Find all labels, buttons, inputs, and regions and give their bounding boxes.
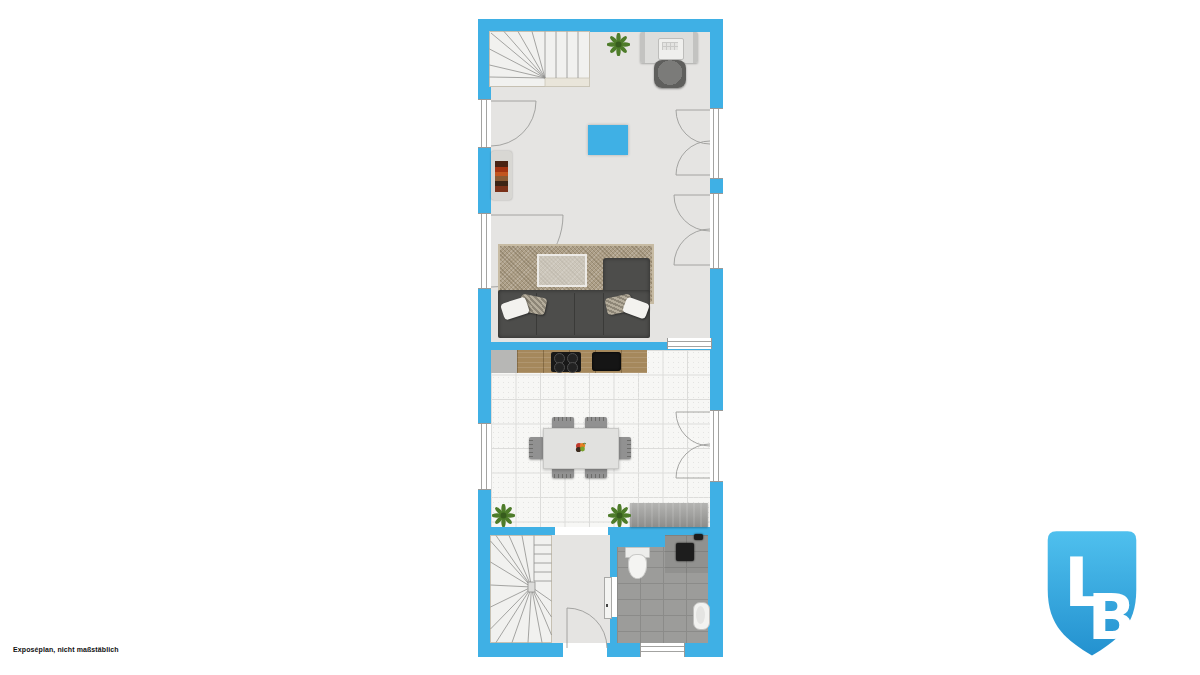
plant-icon [608,504,631,527]
hob-icon [551,352,581,372]
page: Exposéplan, nicht maßstäblich L B [0,0,1200,675]
plant-icon [492,504,515,527]
staircase-top [490,32,590,87]
logo-letter-b: B [1088,581,1136,654]
staircase-bottom [491,536,552,643]
sofa-seam [574,293,575,335]
laptop-icon [658,38,684,60]
fruit-bowl-icon [574,441,587,454]
door-arc-right-2 [674,195,710,265]
washbasin-bowl [696,606,705,624]
shower-icon [676,543,694,561]
dining-chair-icon [529,437,544,459]
door-arc-right-dining [676,412,710,478]
stove-icon [491,151,512,200]
plant-icon [607,33,630,56]
office-chair-icon [654,60,686,88]
toilet-bowl [628,554,647,579]
lb-logo: L B [1038,528,1146,660]
laptop-keyboard [662,42,678,50]
burner-icon [554,362,565,373]
chair-fringe [627,439,631,457]
entrance-door-arc [567,608,607,648]
bathroom-door-leaf [604,577,612,619]
washbasin-icon [693,602,710,630]
chair-fringe [529,439,533,457]
stove-firebox [495,161,508,192]
chair-fringe [587,474,605,478]
disclaimer-text: Exposéplan, nicht maßstäblich [13,646,119,653]
sink-icon [592,352,621,371]
shower-fixture [694,534,703,540]
sofa-seam [603,293,604,335]
door-arc-left-1 [491,101,536,146]
chair-fringe [587,417,605,421]
chair-fringe [554,474,572,478]
chair-fringe [554,417,572,421]
coffee-table-icon [537,254,587,287]
burner-icon [567,362,578,373]
plan-linework [478,19,723,657]
kitchen-counter-end [491,350,517,373]
door-arc-right-1 [676,110,710,175]
sideboard-icon [630,503,708,527]
door-handle [606,604,608,607]
floor-plan [478,19,723,657]
